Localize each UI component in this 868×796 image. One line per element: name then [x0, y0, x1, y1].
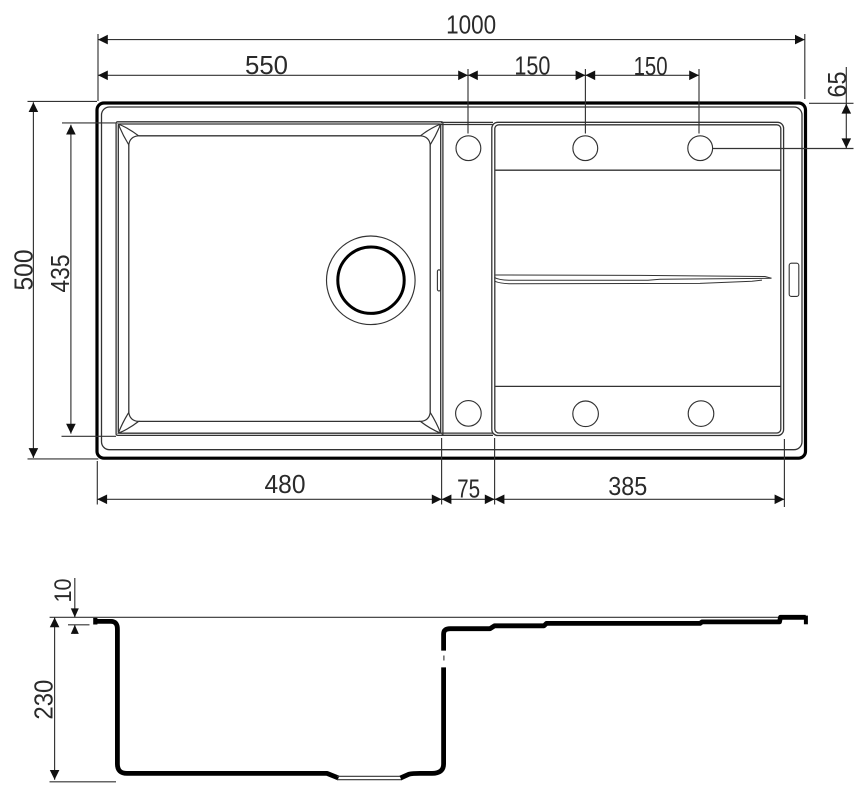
svg-text:550: 550 — [245, 50, 288, 80]
svg-text:75: 75 — [457, 473, 480, 503]
svg-text:10: 10 — [50, 579, 77, 603]
svg-text:500: 500 — [9, 250, 39, 291]
svg-text:480: 480 — [265, 469, 306, 499]
svg-text:435: 435 — [45, 255, 75, 293]
svg-text:150: 150 — [514, 50, 550, 80]
svg-text:385: 385 — [608, 471, 647, 501]
svg-text:150: 150 — [634, 51, 668, 81]
svg-text:230: 230 — [28, 680, 58, 720]
svg-text:1000: 1000 — [446, 9, 496, 39]
svg-text:65: 65 — [822, 72, 852, 98]
